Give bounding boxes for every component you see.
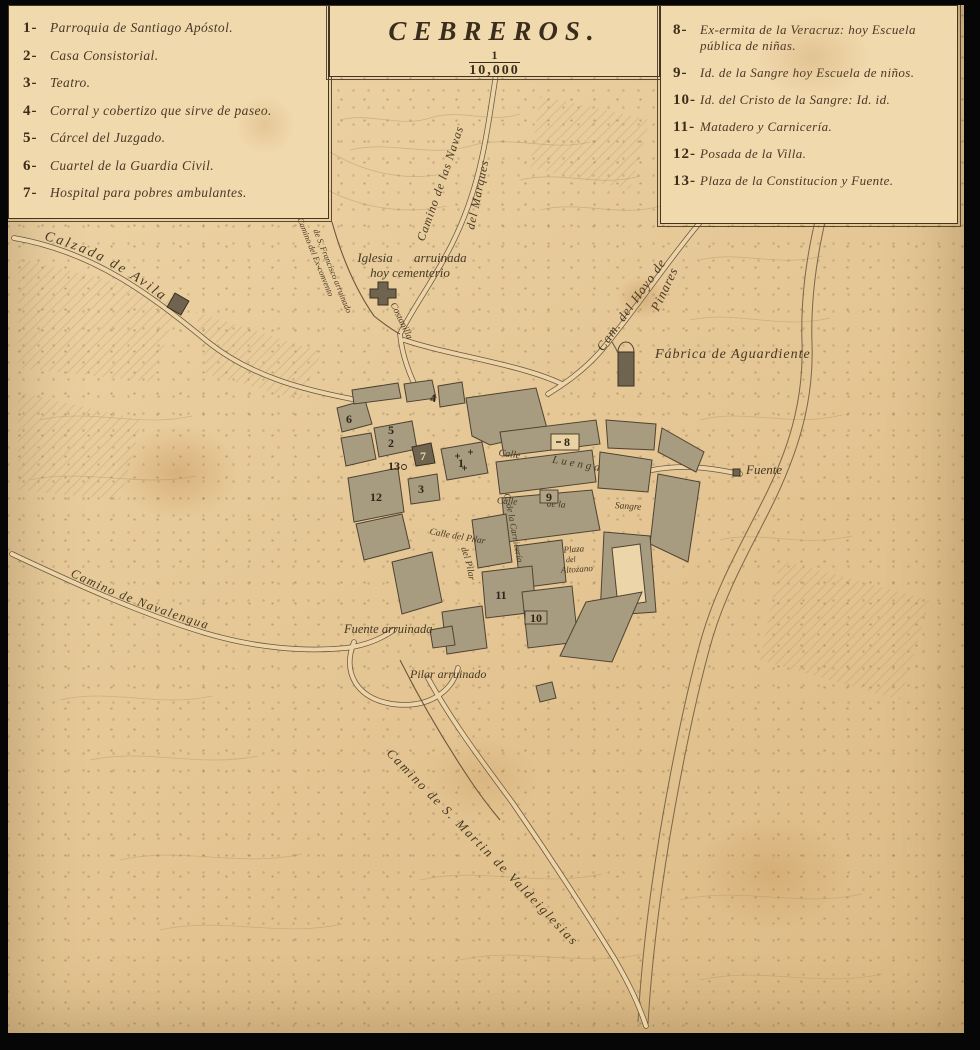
label-fabrica-aguardiente: Fábrica de Aguardiente [654,347,811,362]
scale-numerator: 1 [469,49,520,63]
legend-item-text: Cárcel del Juzgado. [50,130,318,146]
legend-item-number: 5- [23,130,50,146]
map-marker-3: 3 [418,482,424,496]
label-plaza-altozano-2: del [566,555,577,565]
legend-item: 4- Corral y cobertizo que sirve de paseo… [23,103,318,119]
legend-box-left: 1- Parroquia de Santiago Apóstol. 2- Cas… [8,5,329,219]
label-calle-luenga-1: Calle [498,448,522,462]
legend-item-number: 12- [673,146,700,162]
map-marker-12: 12 [370,490,382,504]
legend-item-text: Cuartel de la Guardia Civil. [50,158,318,174]
label-iglesia-arruinada: Iglesia arruinada [356,250,467,265]
legend-item: 11- Matadero y Carnicería. [673,119,949,135]
map-layer: Calzada de Avila Camino de las Navas del… [8,5,964,1033]
legend-item-number: 3- [23,75,50,91]
map-marker-10: 10 [530,611,542,625]
legend-item: 13- Plaza de la Constitucion y Fuente. [673,173,949,189]
legend-item-text: Matadero y Carnicería. [700,119,949,135]
legend-item-number: 1- [23,20,50,36]
label-pilar-arruinado: Pilar arruinado [409,667,486,681]
label-plaza-altozano-3: Altozano [559,563,593,575]
legend-item: 2- Casa Consistorial. [23,48,318,64]
map-marker-11: 11 [495,588,506,602]
label-camino-navalengua: Camino de Navalengua [69,566,212,632]
legend-item: 9- Id. de la Sangre hoy Escuela de niños… [673,65,949,81]
legend-item-number: 13- [673,173,700,189]
legend-item-number: 10- [673,92,700,108]
map-title: CEBREROS. [330,16,659,47]
map-marker-5: 5 [388,423,394,437]
label-hoy-cementerio: hoy cementerio [370,265,450,280]
map-marker-13: 13 [388,459,400,473]
legend-item-number: 11- [673,119,700,135]
map-marker-4: 4 [430,391,436,405]
legend-item-text: Ex-ermita de la Veracruz: hoy Escuela pú… [700,22,949,54]
label-calle-pilar-2: del Pilar [458,546,476,582]
legend-item: 7- Hospital para pobres ambulantes. [23,185,318,201]
legend-item-text: Posada de la Villa. [700,146,949,162]
legend-item-text: Id. del Cristo de la Sangre: Id. id. [700,92,949,108]
legend-item: 10- Id. del Cristo de la Sangre: Id. id. [673,92,949,108]
terrain-contours [30,114,882,980]
map-marker-1: 1 [458,456,464,470]
legend-item-number: 4- [23,103,50,119]
map-marker-8: 8 [564,435,570,449]
legend-item-text: Casa Consistorial. [50,48,318,64]
legend-item: 6- Cuartel de la Guardia Civil. [23,158,318,174]
legend-item-number: 9- [673,65,700,81]
map-paper: Calzada de Avila Camino de las Navas del… [8,5,964,1033]
legend-box-right: 8- Ex-ermita de la Veracruz: hoy Escuela… [660,5,958,224]
legend-item-number: 8- [673,22,700,38]
map-marker-7: 7 [420,449,426,463]
legend-item-number: 2- [23,48,50,64]
legend-item-text: Parroquia de Santiago Apóstol. [50,20,318,36]
label-plaza-altozano-1: Plaza [562,543,585,555]
label-fuente: Fuente [745,462,782,477]
legend-item: 8- Ex-ermita de la Veracruz: hoy Escuela… [673,22,949,54]
legend-item-number: 7- [23,185,50,201]
scale-denominator: 10,000 [469,63,520,78]
marker-13-fountain-dot [402,465,407,470]
map-marker-6: 6 [346,412,352,426]
label-fuente-arruinada: Fuente arruinada [343,622,433,636]
scanned-map-page: Calzada de Avila Camino de las Navas del… [0,0,980,1050]
legend-item: 1- Parroquia de Santiago Apóstol. [23,20,318,36]
map-marker-2: 2 [388,436,394,450]
legend-item: 3- Teatro. [23,75,318,91]
legend-item: 5- Cárcel del Juzgado. [23,130,318,146]
legend-item-text: Teatro. [50,75,318,91]
label-camino-smartin: Camino de S. Martin de Valdeiglesias [384,746,582,949]
map-labels: Calzada de Avila Camino de las Navas del… [43,124,811,949]
legend-item-text: Plaza de la Constitucion y Fuente. [700,173,949,189]
legend-item-text: Hospital para pobres ambulantes. [50,185,318,201]
legend-item: 12- Posada de la Villa. [673,146,949,162]
legend-item-text: Id. de la Sangre hoy Escuela de niños. [700,65,949,81]
map-scale: 1 10,000 [469,49,520,78]
title-box: CEBREROS. 1 10,000 [329,5,660,77]
label-calle-sangre-3: Sangre [615,501,642,513]
map-marker-9: 9 [546,490,552,504]
legend-item-text: Corral y cobertizo que sirve de paseo. [50,103,318,119]
legend-item-number: 6- [23,158,50,174]
label-del-marques: del Marques [463,158,491,230]
